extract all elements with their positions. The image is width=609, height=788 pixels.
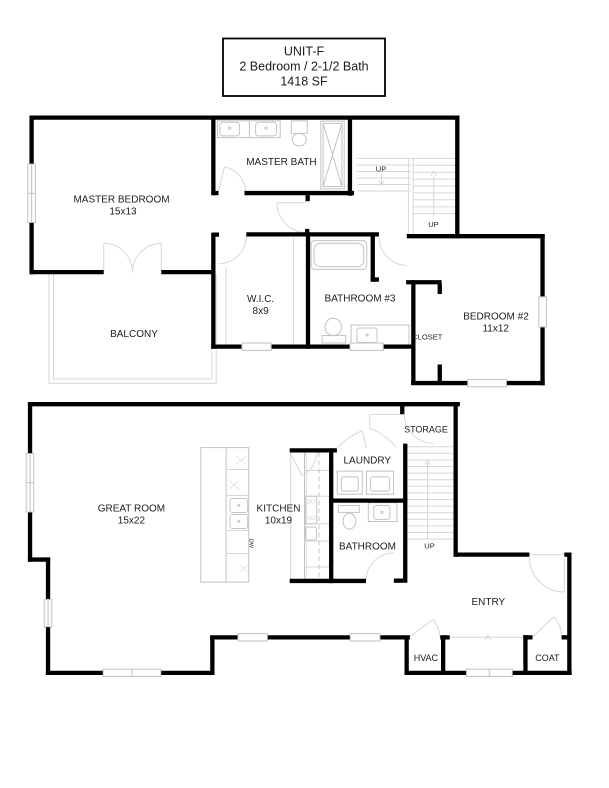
svg-text:HVAC: HVAC bbox=[414, 653, 439, 663]
svg-text:GREAT ROOM: GREAT ROOM bbox=[98, 503, 165, 514]
svg-text:2 Bedroom / 2-1/2 Bath: 2 Bedroom / 2-1/2 Bath bbox=[239, 60, 368, 74]
svg-text:BEDROOM #2: BEDROOM #2 bbox=[463, 312, 529, 323]
svg-text:10x19: 10x19 bbox=[265, 515, 293, 526]
svg-text:W.I.C.: W.I.C. bbox=[247, 294, 274, 305]
svg-text:BALCONY: BALCONY bbox=[110, 329, 158, 340]
svg-text:KITCHEN: KITCHEN bbox=[257, 503, 301, 514]
svg-text:UP: UP bbox=[428, 220, 438, 229]
svg-text:LAUNDRY: LAUNDRY bbox=[343, 456, 391, 467]
svg-text:ENTRY: ENTRY bbox=[471, 597, 505, 608]
svg-text:15x22: 15x22 bbox=[118, 515, 146, 526]
svg-text:1418 SF: 1418 SF bbox=[280, 75, 328, 89]
svg-text:15x13: 15x13 bbox=[109, 207, 137, 218]
svg-text:UP: UP bbox=[424, 542, 434, 551]
svg-text:DW: DW bbox=[248, 539, 254, 549]
svg-text:CLOSET: CLOSET bbox=[412, 332, 442, 341]
svg-text:8x9: 8x9 bbox=[253, 306, 270, 317]
svg-text:BATHROOM #3: BATHROOM #3 bbox=[325, 293, 396, 304]
svg-text:MASTER BEDROOM: MASTER BEDROOM bbox=[73, 195, 169, 206]
svg-text:UP: UP bbox=[376, 164, 386, 173]
svg-text:STORAGE: STORAGE bbox=[404, 425, 448, 435]
svg-text:BATHROOM: BATHROOM bbox=[339, 542, 396, 553]
svg-text:MASTER BATH: MASTER BATH bbox=[246, 157, 316, 168]
svg-text:11x12: 11x12 bbox=[482, 323, 509, 334]
svg-text:UNIT-F: UNIT-F bbox=[284, 45, 325, 59]
svg-text:COAT: COAT bbox=[535, 653, 560, 663]
